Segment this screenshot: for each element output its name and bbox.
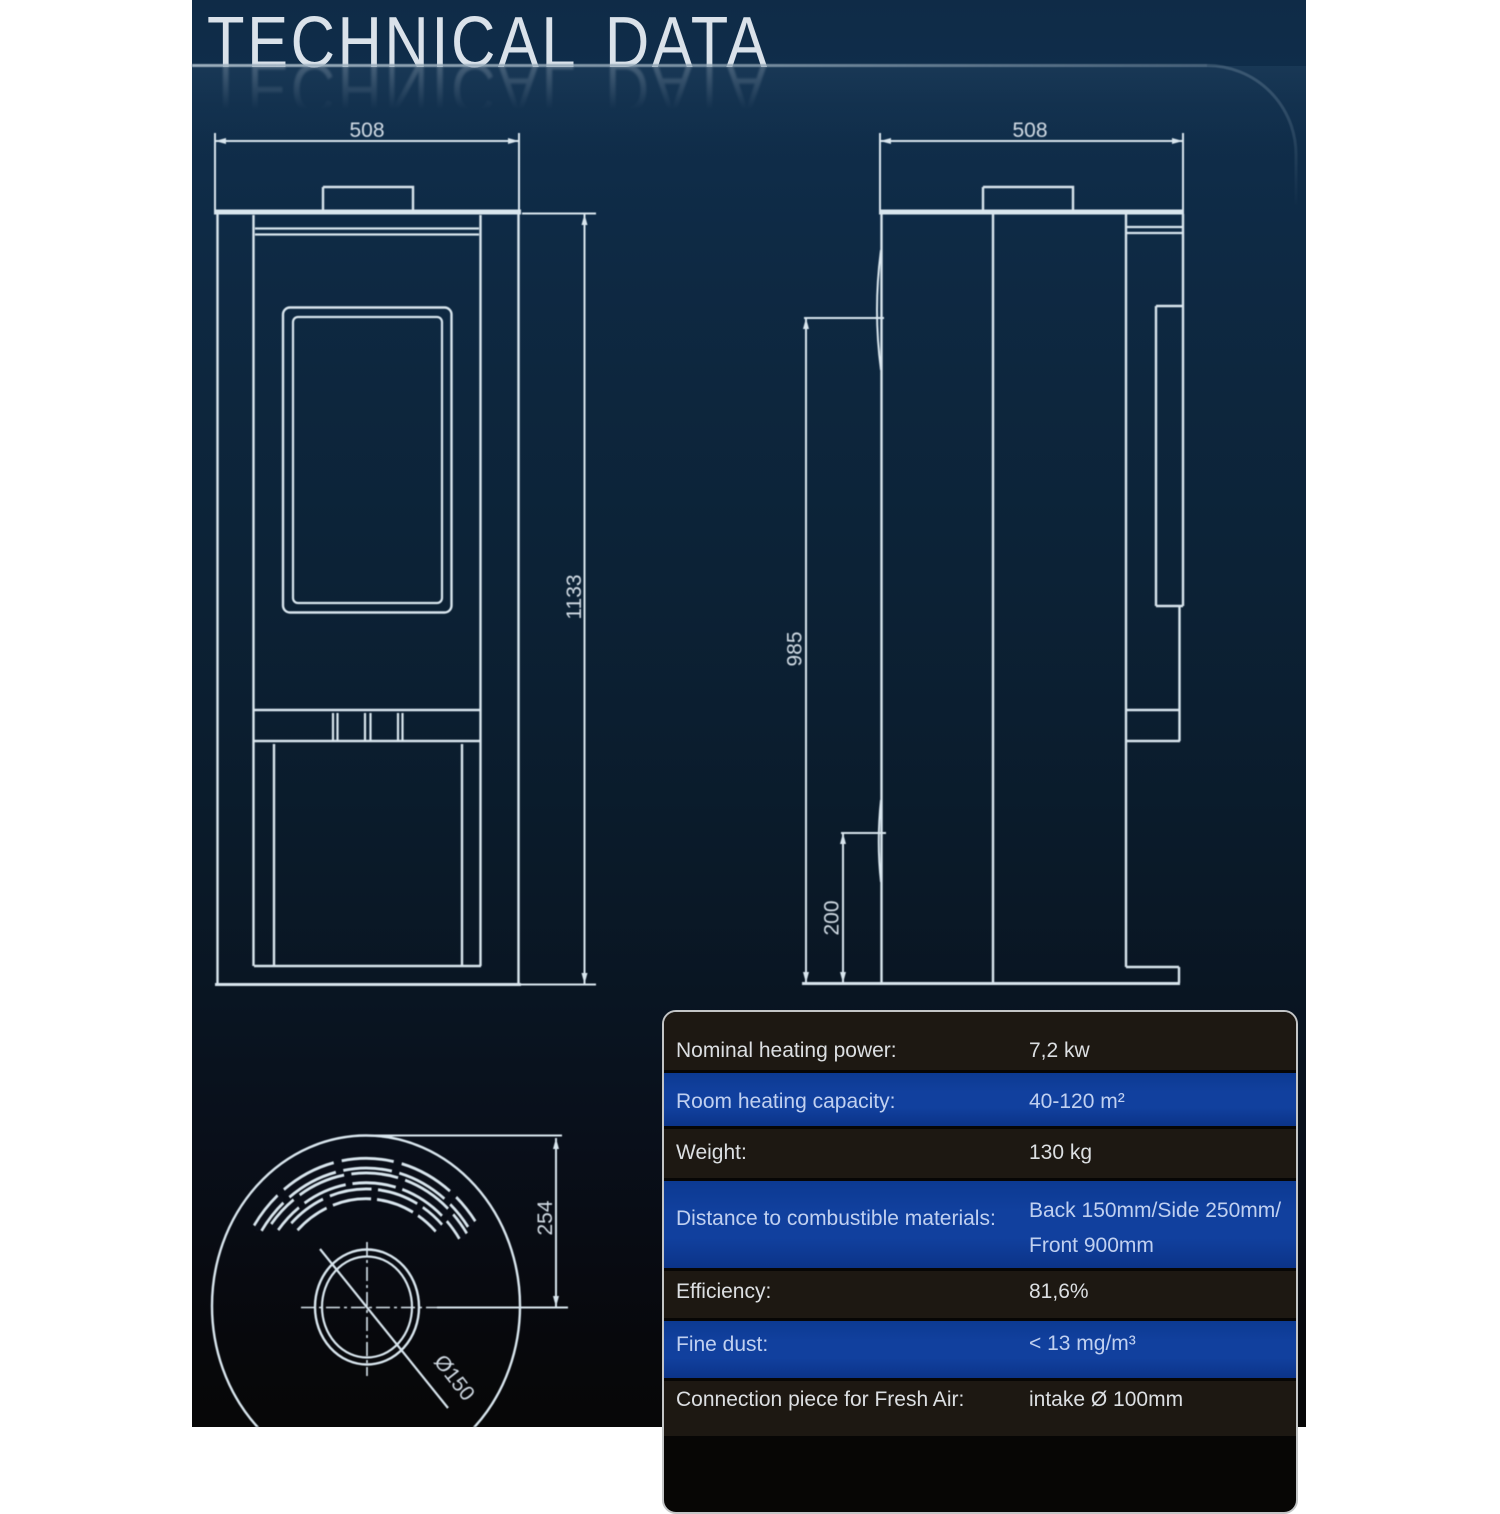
svg-text:1133: 1133 <box>563 574 586 619</box>
svg-text:200: 200 <box>821 900 844 935</box>
svg-text:985: 985 <box>784 631 807 666</box>
svg-text:508: 508 <box>1012 119 1047 142</box>
svg-text:254: 254 <box>534 1200 557 1235</box>
svg-text:508: 508 <box>349 119 384 142</box>
svg-text:Ø150: Ø150 <box>429 1351 479 1406</box>
